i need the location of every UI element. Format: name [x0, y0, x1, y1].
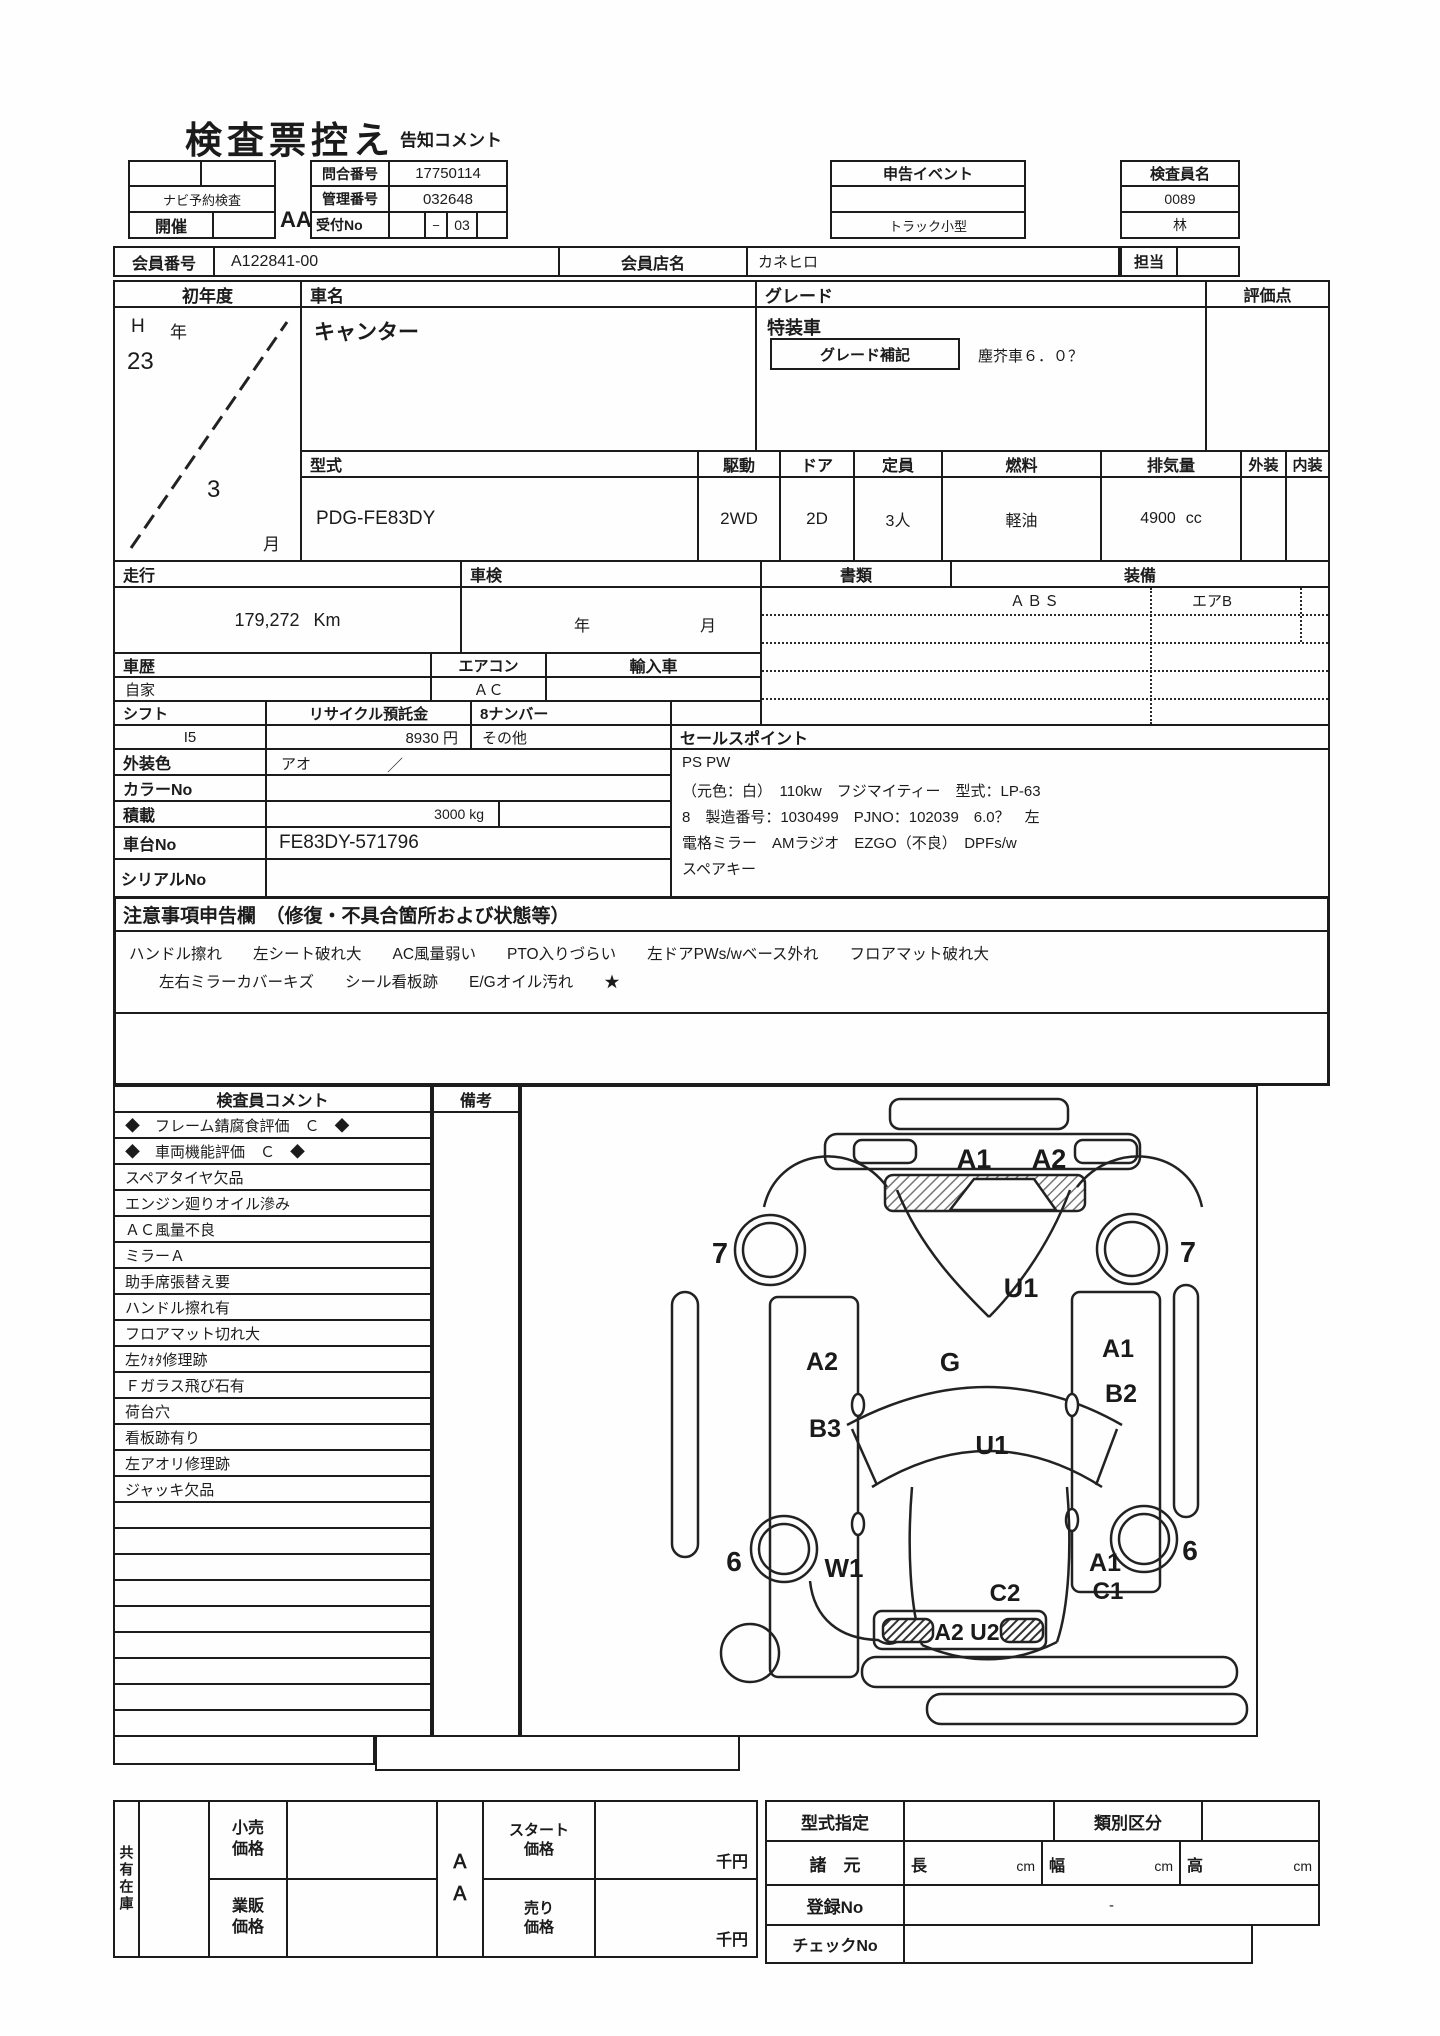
zone-label-b2-right: B2 — [1105, 1380, 1137, 1408]
inspector-name: 林 — [1120, 211, 1240, 239]
side-rail-left — [672, 1292, 698, 1557]
score-cell-empty — [1205, 306, 1330, 452]
diagonal-slash — [115, 308, 300, 560]
comment-row — [113, 1631, 432, 1659]
rear-hatch-right — [1001, 1619, 1043, 1642]
chassis-value: FE83DY-571796 — [265, 826, 672, 860]
member-shop-label: 会員店名 — [558, 246, 748, 277]
tanto-value-cell — [1176, 246, 1240, 277]
sales-line: スペアキー — [682, 858, 756, 879]
color-value-cell: アオ ／ — [265, 748, 672, 776]
sell-price-unit: 千円 — [716, 1926, 748, 1950]
comment-row: 左ｸｫﾀ修理跡 — [113, 1345, 432, 1373]
drive-label: 駆動 — [697, 450, 781, 478]
control-no: 032648 — [388, 185, 508, 213]
sell-price-value: 千円 — [594, 1878, 758, 1958]
start-price-value: 千円 — [594, 1800, 758, 1880]
mileage-number: 179,272 — [234, 610, 299, 631]
zone-label-a1-rear: A1 — [1089, 1549, 1121, 1577]
comment-header: 検査員コメント — [113, 1085, 432, 1113]
shaken-label: 車検 — [460, 560, 762, 588]
start-price-label-text: スタート価格 — [507, 1821, 571, 1860]
retail-price-value — [286, 1800, 438, 1880]
displacement-label: 排気量 — [1100, 450, 1242, 478]
hinge-mark — [852, 1513, 864, 1535]
era-suffix: 年 — [170, 318, 187, 343]
rear-wheel-left — [751, 1516, 817, 1582]
zone-label-c2: C2 — [990, 1580, 1021, 1607]
aircon-value: ＡＣ — [430, 676, 547, 702]
model-spec-value — [903, 1800, 1055, 1842]
retail-price-label-text: 小売価格 — [231, 1819, 265, 1861]
mileage-unit: Km — [314, 610, 341, 631]
era: H — [131, 316, 145, 338]
retail-price-label: 小売価格 — [208, 1800, 288, 1880]
inspection-sheet-scan: 検査票控え 告知コメント ナビ予約検査 開催 AA 問合番号 17750114 … — [0, 0, 1440, 2036]
width-cell: 幅 cm — [1041, 1840, 1181, 1886]
inspector-no: 0089 — [1120, 185, 1240, 213]
door-value: 2D — [779, 476, 855, 562]
comment-row: ミラーＡ — [113, 1241, 432, 1269]
zone-label-u1-mid: U1 — [975, 1430, 1008, 1460]
zone-label-a1-right: A1 — [1102, 1335, 1134, 1363]
grade-label: グレード — [755, 280, 1207, 308]
mileage-label: 走行 — [113, 560, 462, 588]
notice-line: ハンドル擦れ 左シート破れ大 AC風量弱い PTO入りづらい 左ドアPWs/wベ… — [129, 942, 989, 964]
displacement-number: 4900 — [1140, 510, 1176, 528]
bed-edge-right — [1057, 1487, 1069, 1642]
cab-arc-upper — [847, 1387, 1122, 1425]
zone-label-b3-left: B3 — [809, 1415, 841, 1443]
member-shop: カネヒロ — [746, 246, 1120, 277]
member-no: A122841-00 — [213, 246, 560, 277]
name-label: 車名 — [300, 280, 757, 308]
grade-note-label: グレード補記 — [770, 338, 960, 370]
number8-value: その他 — [470, 724, 672, 750]
aircon-label: エアコン — [430, 652, 547, 678]
sales-line: PS PW — [682, 754, 730, 771]
reception-no: 03 — [446, 211, 478, 239]
exterior-value-cell — [1240, 476, 1287, 562]
grid-line — [762, 642, 1328, 644]
displacement-unit: cc — [1186, 510, 1202, 528]
cab-arc-join-left — [852, 1429, 877, 1485]
width-label: 幅 — [1049, 1852, 1065, 1876]
inquiry-no: 17750114 — [388, 160, 508, 187]
recycle-value: 8930 円 — [265, 724, 472, 750]
comment-footer-cell — [113, 1735, 375, 1765]
comment-row — [113, 1501, 432, 1529]
sales-line: 8 製造番号：1030499 PJNO：102039 6.0？ 左 — [682, 806, 1040, 827]
comment-row — [113, 1709, 432, 1737]
reception-label: 受付No — [310, 211, 390, 239]
remarks-column — [432, 1111, 520, 1737]
zone-label-7-right: 7 — [1180, 1237, 1196, 1269]
kaisai-label: 開催 — [128, 211, 214, 239]
front-wheel-left-inner — [743, 1223, 797, 1277]
truck-damage-diagram: A1 A2 7 7 U1 G A2 B3 A1 B2 U1 6 6 W1 A1 … — [522, 1087, 1256, 1735]
member-no-label: 会員番号 — [113, 246, 215, 277]
front-wheel-right-inner — [1105, 1222, 1159, 1276]
reception-cell-blank — [388, 211, 426, 239]
front-lamp-left — [854, 1140, 916, 1163]
number8-label: 8ナンバー — [470, 700, 672, 726]
comment-row — [113, 1657, 432, 1685]
zone-label-6-left: 6 — [726, 1546, 742, 1577]
inspector-name-label: 検査員名 — [1120, 160, 1240, 187]
import-label: 輸入車 — [545, 652, 762, 678]
serial-label: シリアルNo — [113, 858, 267, 898]
aa-grade: AA — [280, 207, 312, 233]
length-label: 長 — [911, 1852, 927, 1876]
mileage-value: 179,272 Km — [113, 586, 462, 654]
grid-line — [762, 698, 1328, 700]
hinge-mark — [1066, 1394, 1078, 1416]
check-no-label: チェックNo — [765, 1924, 905, 1964]
interior-value-cell — [1285, 476, 1330, 562]
comment-row: ◆ 車両機能評価 Ｃ ◆ — [113, 1137, 432, 1165]
width-unit: cm — [1154, 1858, 1173, 1874]
comment-row: ＡＣ風量不良 — [113, 1215, 432, 1243]
comment-row — [113, 1527, 432, 1555]
comment-row: ジャッキ欠品 — [113, 1475, 432, 1503]
wholesale-price-label-text: 業販価格 — [231, 1897, 265, 1939]
sell-price-label: 売り価格 — [482, 1878, 596, 1958]
color-value: アオ — [281, 753, 311, 774]
event-label: 申告イベント — [830, 160, 1026, 187]
zone-label-a1-top: A1 — [957, 1144, 992, 1174]
payload-value: 3000 kg — [265, 800, 500, 828]
colorno-value-cell — [265, 774, 672, 802]
height-unit: cm — [1293, 1858, 1312, 1874]
notify-comment-label: 告知コメント — [400, 126, 502, 151]
capacity-value: 3人 — [853, 476, 943, 562]
equip-label: 装備 — [950, 560, 1330, 588]
special-vehicle-label: 特装車 — [767, 314, 821, 340]
shared-stock-cell — [138, 1800, 210, 1958]
comment-row: 看板跡有り — [113, 1423, 432, 1451]
first-year-value: 23 — [127, 348, 154, 376]
check-no-value — [903, 1924, 1253, 1964]
model-value: PDG-FE83DY — [300, 476, 699, 562]
height-label: 高 — [1187, 1852, 1203, 1876]
equip-airbag: エアB — [1192, 590, 1232, 611]
page-title: 検査票控え — [185, 110, 395, 164]
rear-wheel-left-inner — [759, 1524, 809, 1574]
comment-row: スペアタイヤ欠品 — [113, 1163, 432, 1191]
vehicle-name: キャンター — [300, 306, 757, 452]
zone-label-7-left: 7 — [712, 1238, 728, 1270]
interior-label: 内装 — [1285, 450, 1330, 478]
length-cell: 長 cm — [903, 1840, 1043, 1886]
comment-row — [113, 1683, 432, 1711]
damage-diagram-box: A1 A2 7 7 U1 G A2 B3 A1 B2 U1 6 6 W1 A1 … — [520, 1085, 1258, 1737]
tanto-label: 担当 — [1120, 246, 1178, 277]
reception-cell-blank2 — [476, 211, 508, 239]
colorno-label: カラーNo — [113, 774, 267, 802]
front-wheel-left — [735, 1215, 805, 1285]
first-month-value: 3 — [207, 476, 220, 504]
notice-line: 左右ミラーカバーキズ シール看板跡 E/Gオイル汚れ ★ — [159, 970, 620, 992]
remarks-header: 備考 — [432, 1085, 520, 1113]
shaken-month: 月 — [700, 612, 716, 636]
history-label: 車歴 — [113, 652, 432, 678]
zone-label-w1: W1 — [825, 1553, 864, 1583]
zone-label-a2-top: A2 — [1032, 1144, 1067, 1174]
docs-label: 書類 — [760, 560, 952, 588]
sell-price-label-text: 売り価格 — [520, 1899, 558, 1938]
shaken-value-cell: 年 月 — [460, 586, 762, 654]
dimensions-label: 諸 元 — [765, 1840, 905, 1886]
aa-column: ＡＡ — [436, 1800, 484, 1958]
sales-point-block: PS PW （元色：白） 110kw フジマイティー 型式：LP-63 8 製造… — [670, 748, 1330, 898]
sales-line: 電格ミラー AMラジオ EZGO（不良） DPFs/w — [682, 832, 1017, 853]
month-suffix: 月 — [263, 530, 280, 555]
comment-row: Ｆガラス飛び石有 — [113, 1371, 432, 1399]
reserve-type: ナビ予約検査 — [128, 185, 276, 213]
comment-row: エンジン廻りオイル滲み — [113, 1189, 432, 1217]
start-price-unit: 千円 — [716, 1848, 748, 1872]
notice-body: ハンドル擦れ 左シート破れ大 AC風量弱い PTO入りづらい 左ドアPWs/wベ… — [113, 930, 1330, 1014]
shared-stock-label: 共有在庫 — [113, 1800, 140, 1958]
front-wheel-right — [1097, 1214, 1167, 1284]
reserve-box-cell-empty2 — [200, 160, 276, 187]
model-spec-label: 型式指定 — [765, 1800, 905, 1842]
displacement-value: 4900 cc — [1100, 476, 1242, 562]
model-label: 型式 — [300, 450, 699, 478]
height-cell: 高 cm — [1179, 1840, 1320, 1886]
comment-footer-wide-cell — [375, 1735, 740, 1771]
registration-value: - — [903, 1884, 1320, 1926]
inquiry-label: 問合番号 — [310, 160, 390, 187]
reserve-box-cell-empty1 — [128, 160, 202, 187]
class-label: 類別区分 — [1053, 1800, 1203, 1842]
sales-point-label: セールスポイント — [670, 724, 1330, 750]
event-cell-blank — [830, 185, 1026, 213]
class-value — [1201, 1800, 1320, 1842]
comment-row: フロアマット切れ大 — [113, 1319, 432, 1347]
score-label: 評価点 — [1205, 280, 1330, 308]
fuel-value: 軽油 — [941, 476, 1102, 562]
recycle-label: リサイクル預託金 — [265, 700, 472, 726]
zone-label-c1: C1 — [1093, 1578, 1124, 1605]
comment-row — [113, 1605, 432, 1633]
color-slash: ／ — [387, 752, 403, 776]
comment-row: 左アオリ修理跡 — [113, 1449, 432, 1477]
grid-line — [762, 670, 1328, 672]
comment-row: 助手席張替え要 — [113, 1267, 432, 1295]
import-value-cell — [545, 676, 762, 702]
shift-value: I5 — [113, 724, 267, 750]
first-year-cell: H 年 23 3 月 — [113, 306, 302, 562]
special-vehicle-cell: 特装車 — [755, 306, 1207, 452]
fuel-label: 燃料 — [941, 450, 1102, 478]
aa-column-text: ＡＡ — [449, 1847, 471, 1912]
wholesale-price-value — [286, 1878, 438, 1958]
registration-label: 登録No — [765, 1884, 905, 1926]
comment-row — [113, 1579, 432, 1607]
grade-note: 塵芥車６．０？ — [978, 345, 1083, 366]
cab-arc-join-right — [1096, 1429, 1117, 1485]
payload-label: 積載 — [113, 800, 267, 828]
reception-dash: − — [424, 211, 448, 239]
comment-row: ハンドル擦れ有 — [113, 1293, 432, 1321]
payload-blank-cell — [498, 800, 672, 828]
grid-line — [1150, 588, 1152, 724]
start-price-label: スタート価格 — [482, 1800, 596, 1880]
rear-hatch-left — [883, 1619, 933, 1642]
zone-label-6-right: 6 — [1182, 1535, 1198, 1566]
shaken-year: 年 — [574, 612, 590, 636]
number8-blank-cell — [670, 700, 762, 726]
zone-label-u1-upper: U1 — [1004, 1273, 1039, 1303]
hinge-mark — [852, 1394, 864, 1416]
comment-row: 荷台穴 — [113, 1397, 432, 1425]
first-year-label: 初年度 — [113, 280, 302, 308]
shift-label: シフト — [113, 700, 267, 726]
side-rail-right — [1174, 1285, 1198, 1517]
kaisai-value-cell — [212, 211, 276, 239]
notice-header: 注意事項申告欄 （修復・不具合箇所および状態等） — [113, 896, 1330, 932]
roof-bar — [890, 1099, 1068, 1129]
grid-line — [1300, 588, 1302, 642]
drive-value: 2WD — [697, 476, 781, 562]
length-unit: cm — [1016, 1858, 1035, 1874]
door-label: ドア — [779, 450, 855, 478]
wholesale-price-label: 業販価格 — [208, 1878, 288, 1958]
color-label: 外装色 — [113, 748, 267, 776]
control-label: 管理番号 — [310, 185, 390, 213]
comment-row — [113, 1553, 432, 1581]
capacity-label: 定員 — [853, 450, 943, 478]
comment-row: ◆ フレーム錆腐食評価 Ｃ ◆ — [113, 1111, 432, 1139]
front-lamp-right — [1075, 1140, 1137, 1163]
exterior-label: 外装 — [1240, 450, 1287, 478]
chassis-label: 車台No — [113, 826, 267, 860]
event-value: トラック小型 — [830, 211, 1026, 239]
grid-line — [762, 614, 1328, 616]
history-value: 自家 — [113, 676, 432, 702]
equip-abs: ＡＢＳ — [1010, 590, 1061, 611]
zone-label-a2u2: A2 U2 — [934, 1619, 999, 1645]
sales-line: （元色：白） 110kw フジマイティー 型式：LP-63 — [682, 780, 1041, 801]
rear-bar-2 — [927, 1694, 1247, 1724]
rear-bar-1 — [862, 1657, 1237, 1687]
zone-label-a2-left: A2 — [806, 1348, 838, 1376]
rear-wheel-right-inner — [1119, 1514, 1169, 1564]
serial-value-cell — [265, 858, 672, 898]
zone-label-g: G — [940, 1347, 960, 1377]
